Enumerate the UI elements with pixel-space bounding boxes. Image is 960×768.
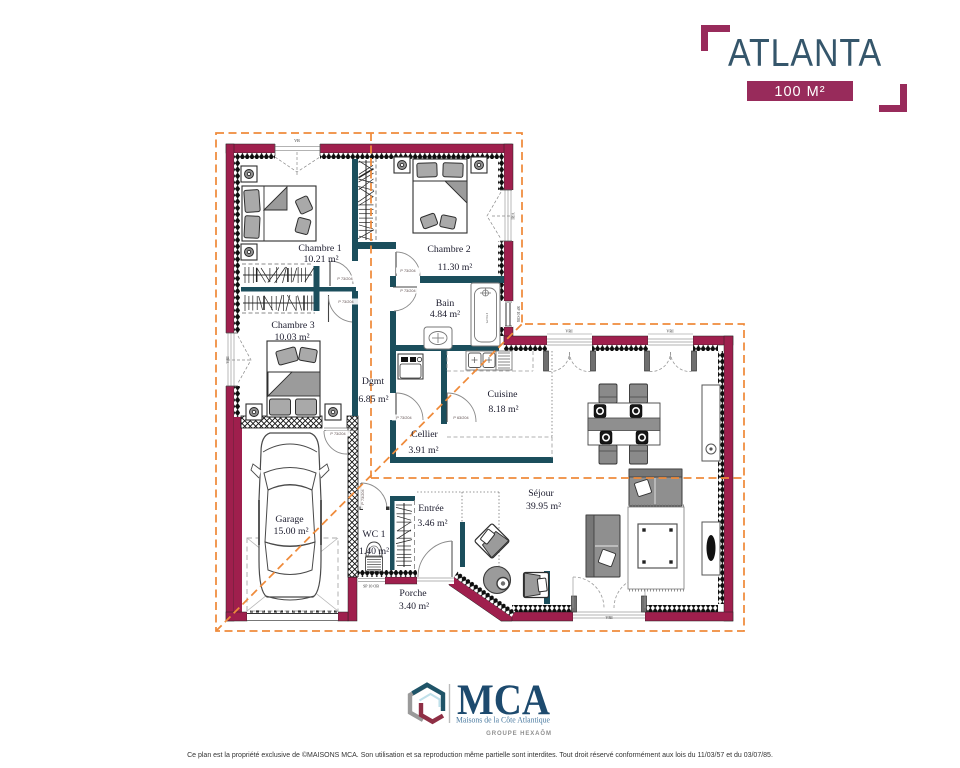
svg-text:Ce plan est la propriété exclu: Ce plan est la propriété exclusive de ©M… bbox=[187, 751, 773, 759]
svg-text:VRI: VRI bbox=[565, 329, 573, 334]
svg-text:WC 1: WC 1 bbox=[362, 529, 385, 540]
svg-text:VRI: VRI bbox=[511, 212, 516, 220]
svg-text:Bain: Bain bbox=[436, 298, 455, 309]
svg-text:Porche: Porche bbox=[399, 588, 427, 599]
svg-text:Chambre 3: Chambre 3 bbox=[271, 320, 314, 331]
svg-text:3.91 m²: 3.91 m² bbox=[408, 445, 438, 456]
svg-text:P 73/204: P 73/204 bbox=[361, 489, 365, 504]
svg-text:11.30 m²: 11.30 m² bbox=[438, 262, 473, 273]
svg-text:Chambre 1: Chambre 1 bbox=[298, 243, 341, 254]
svg-text:10.21 m²: 10.21 m² bbox=[303, 254, 338, 265]
svg-text:P 73/204: P 73/204 bbox=[330, 432, 345, 436]
svg-text:Cuisine: Cuisine bbox=[488, 389, 519, 400]
svg-text:Chambre 2: Chambre 2 bbox=[427, 244, 470, 255]
svg-text:P 73/204: P 73/204 bbox=[400, 269, 415, 273]
svg-text:39.95 m²: 39.95 m² bbox=[526, 501, 561, 512]
svg-text:SP 10 OB: SP 10 OB bbox=[516, 306, 521, 322]
svg-text:4.84 m²: 4.84 m² bbox=[430, 309, 460, 320]
svg-text:15.00 m²: 15.00 m² bbox=[273, 526, 308, 537]
svg-text:6.85 m²: 6.85 m² bbox=[358, 394, 388, 405]
svg-text:VR: VR bbox=[294, 138, 300, 143]
svg-text:100 M²: 100 M² bbox=[774, 84, 825, 100]
svg-text:VRI: VRI bbox=[666, 329, 674, 334]
svg-text:Entrée: Entrée bbox=[418, 503, 444, 514]
svg-text:Dgmt: Dgmt bbox=[362, 376, 385, 387]
svg-text:Garage: Garage bbox=[275, 514, 304, 525]
svg-text:Maisons de la Côte Atlantique: Maisons de la Côte Atlantique bbox=[456, 715, 550, 725]
svg-text:P 73/204: P 73/204 bbox=[338, 300, 353, 304]
svg-text:Cellier: Cellier bbox=[411, 429, 438, 440]
svg-text:P 63/204: P 63/204 bbox=[453, 416, 468, 420]
svg-text:P 73/204: P 73/204 bbox=[400, 289, 415, 293]
svg-text:VRI: VRI bbox=[225, 356, 230, 364]
svg-text:ATLANTA: ATLANTA bbox=[728, 32, 882, 75]
svg-text:VRI: VRI bbox=[605, 615, 613, 620]
svg-text:SP 10 OB: SP 10 OB bbox=[363, 584, 379, 589]
svg-text:8.18 m²: 8.18 m² bbox=[488, 404, 518, 415]
svg-text:Séjour: Séjour bbox=[528, 488, 554, 499]
svg-text:170x75: 170x75 bbox=[485, 313, 489, 324]
svg-text:1.40 m²: 1.40 m² bbox=[359, 546, 389, 557]
svg-text:GROUPE HEXAÔM: GROUPE HEXAÔM bbox=[486, 729, 552, 737]
svg-text:10.03 m²: 10.03 m² bbox=[274, 332, 309, 343]
svg-text:P 73/204: P 73/204 bbox=[396, 416, 411, 420]
svg-text:P 73/204: P 73/204 bbox=[337, 277, 352, 281]
svg-text:3.40 m²: 3.40 m² bbox=[399, 601, 429, 612]
svg-text:3.46 m²: 3.46 m² bbox=[417, 518, 447, 529]
